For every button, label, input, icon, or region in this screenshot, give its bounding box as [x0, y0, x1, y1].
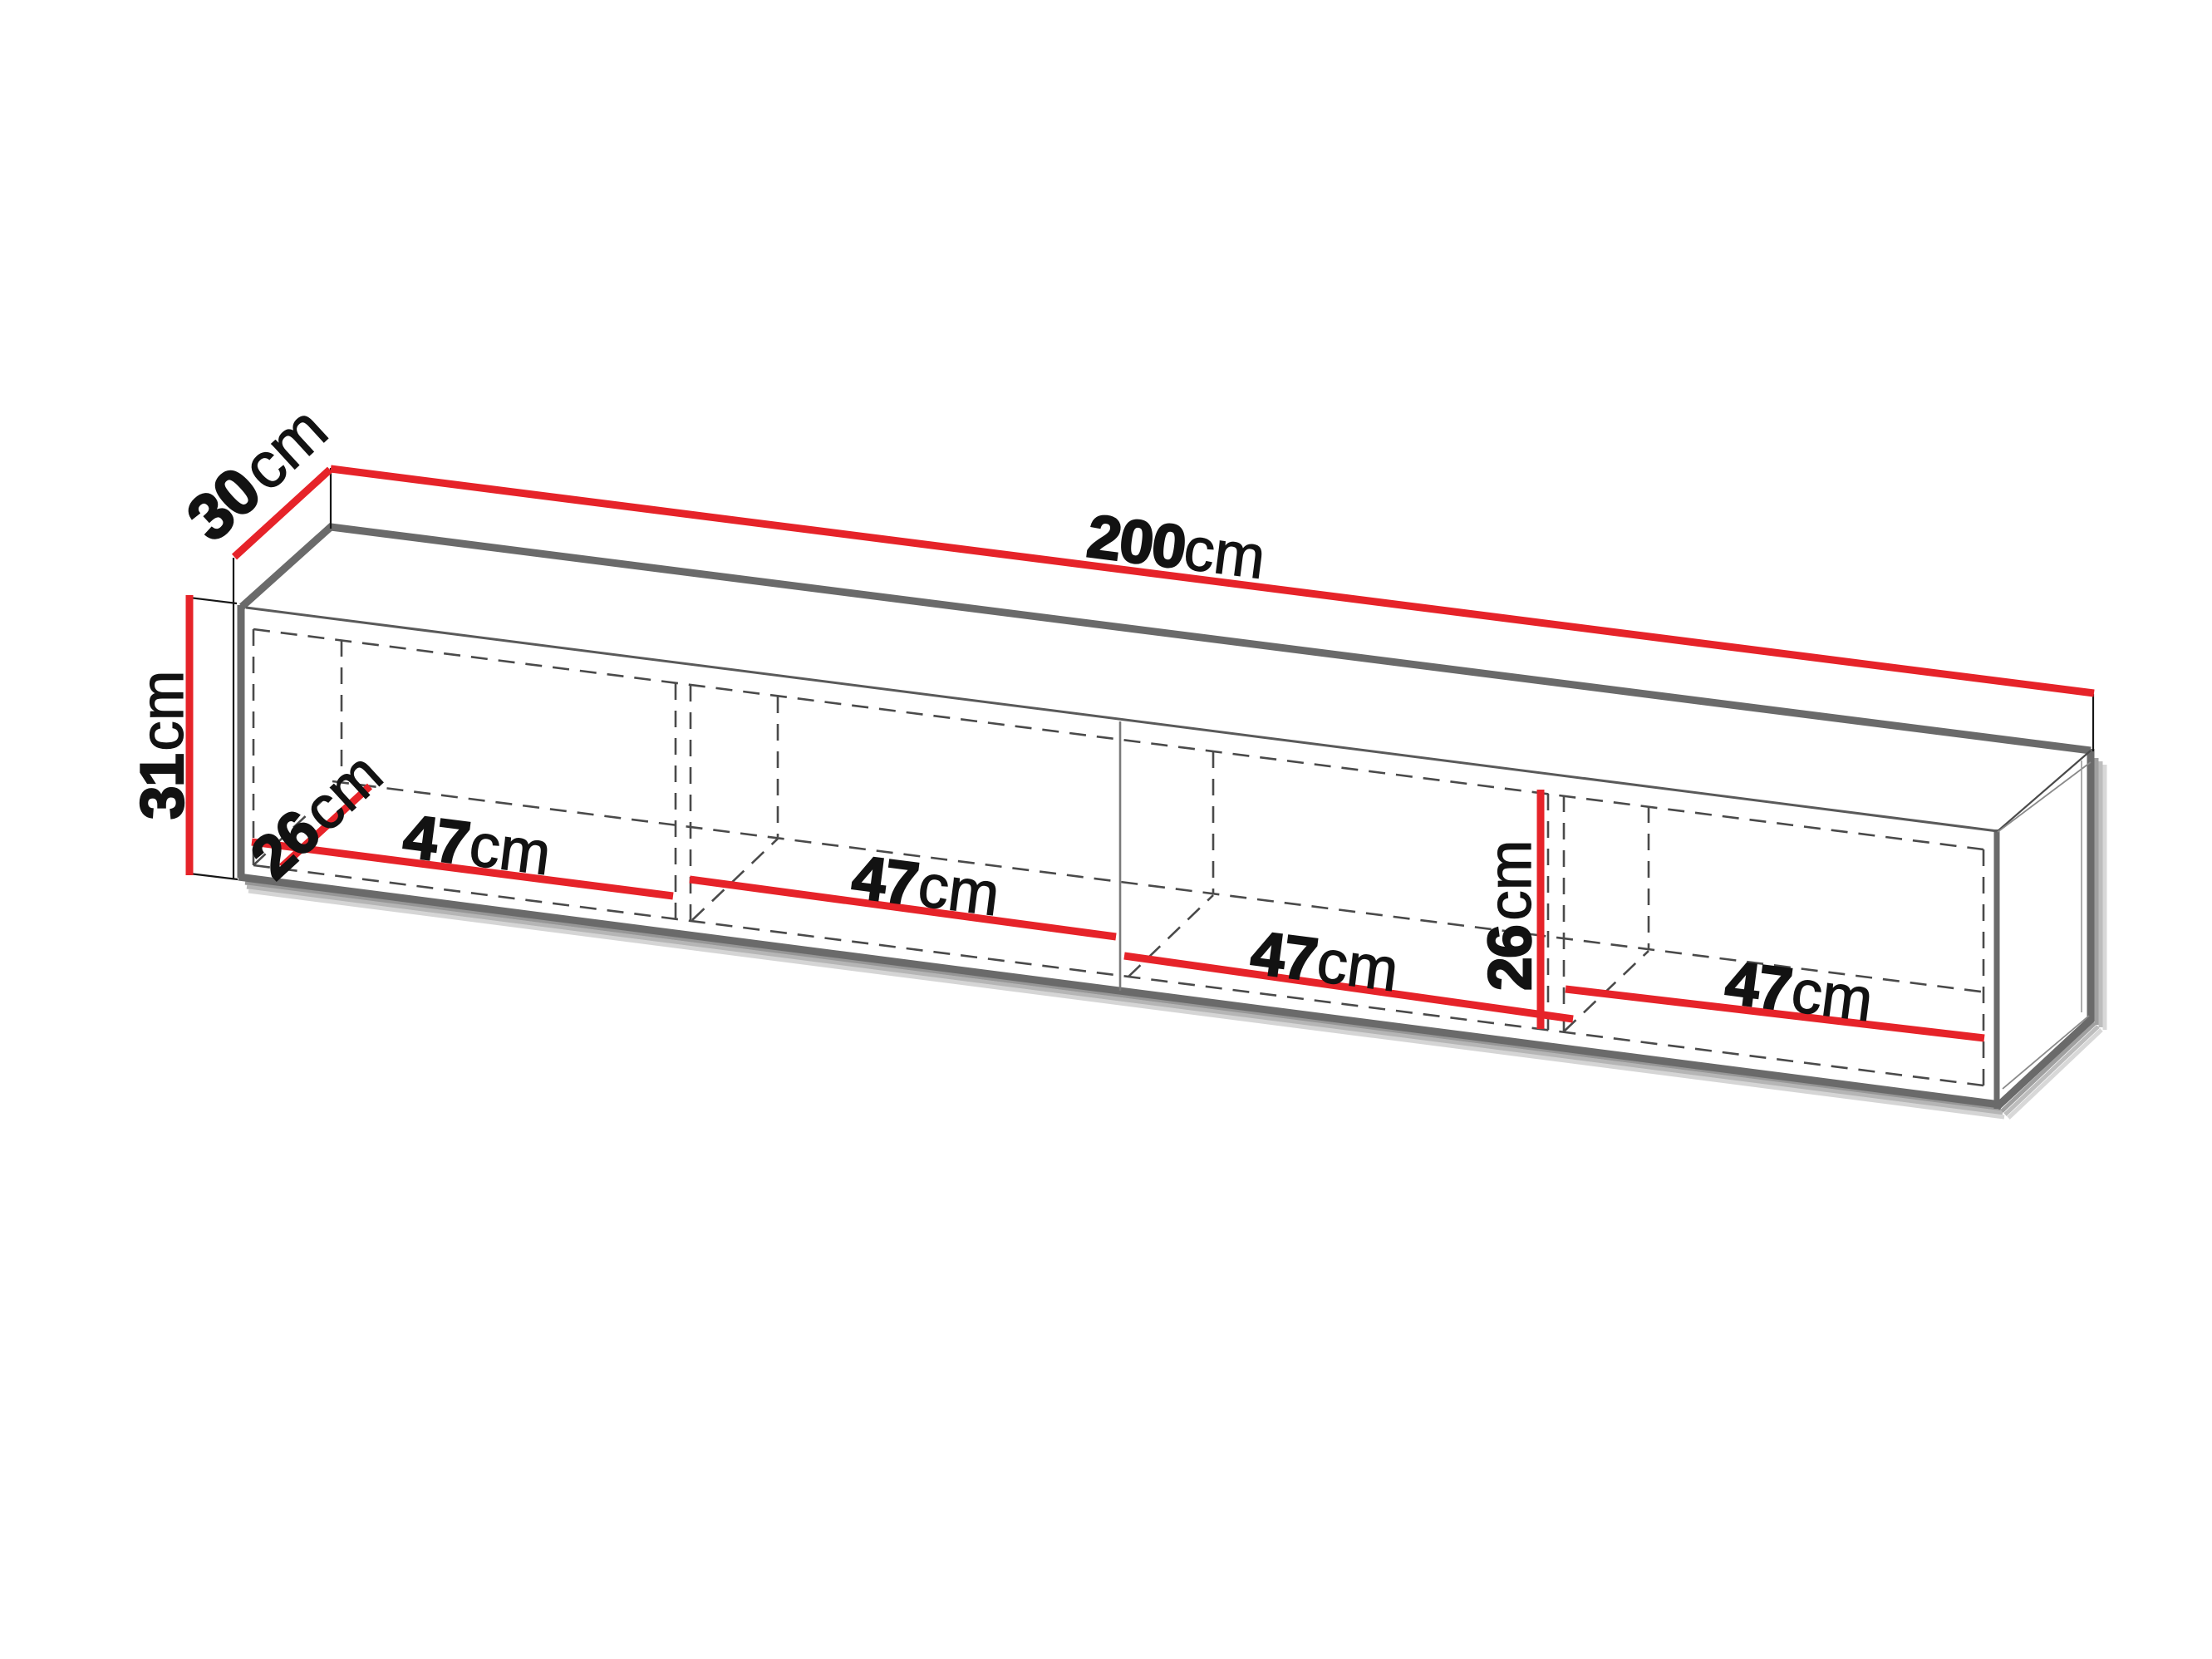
svg-text:26cm: 26cm [1477, 839, 1544, 991]
svg-text:31cm: 31cm [129, 670, 196, 820]
